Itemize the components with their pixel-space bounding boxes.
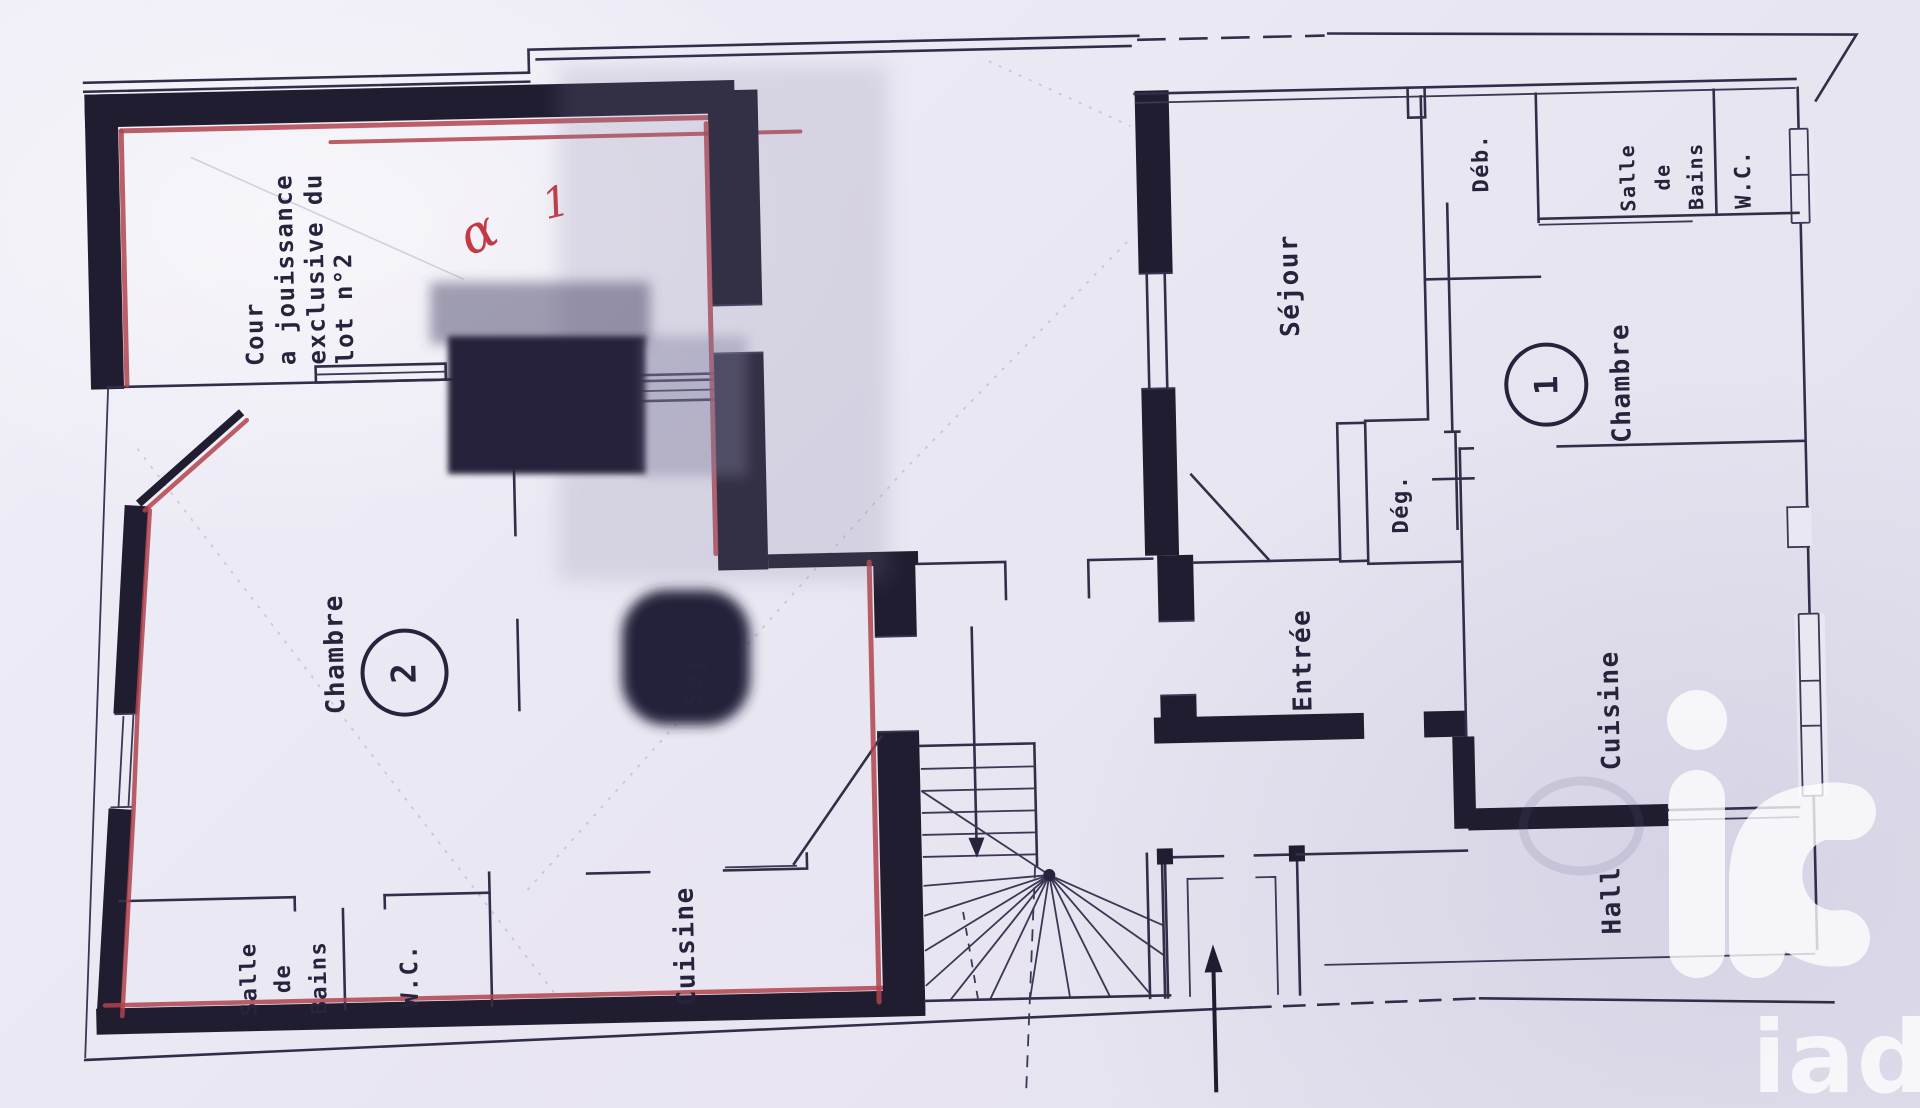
room-label-cuisine2: Cuisine — [669, 886, 702, 1007]
plan-drawing: Cour a jouissance exclusive du lot n°2 — [63, 20, 1881, 1108]
lot1-walls — [1135, 76, 1833, 969]
room-labels: Chambre 2 Salle de Bains W.C. Cuisine Sé… — [218, 127, 1774, 1016]
room-label-wc2: W.C. — [395, 943, 424, 1007]
courtyard-label-line: exclusive du — [299, 173, 331, 365]
iad-watermark: iad — [1667, 690, 1920, 1108]
room-label-cuisine1: Cuisine — [1594, 650, 1627, 771]
window-icon — [316, 364, 446, 383]
room-label-deg: Dég. — [1388, 474, 1414, 534]
iad-wordmark: iad — [1752, 999, 1920, 1108]
redaction-patches: Séj — [430, 66, 888, 725]
room-label-sdb2-line: de — [271, 963, 297, 993]
room-label-wc1: W.C. — [1731, 149, 1757, 209]
room-number-2: 2 — [384, 661, 424, 684]
room-label-chambre2: Chambre — [319, 594, 352, 715]
room-label-deb: Déb. — [1468, 133, 1494, 193]
red-scribble: α — [449, 199, 507, 268]
door-swing-line — [791, 737, 884, 864]
entrance-arrow-icon — [1204, 944, 1225, 1092]
room-number-1: 1 — [1527, 374, 1565, 396]
iad-logo-icon — [1667, 690, 1727, 750]
room-label-sdb1-line: de — [1650, 163, 1675, 191]
iad-logo-icon — [1697, 798, 1848, 950]
room-label-sdb1-line: Salle — [1615, 144, 1641, 212]
courtyard-label-line: Cour — [240, 302, 269, 366]
entrance-vestibule — [1157, 842, 1472, 1094]
door-swing-line — [1191, 473, 1268, 561]
red-annotations: α 1 — [448, 175, 575, 269]
room-label-sdb1-line: Bains — [1683, 142, 1709, 210]
courtyard-label-line: a jouissance — [269, 174, 301, 366]
courtyard-label: Cour a jouissance exclusive du lot n°2 — [237, 172, 359, 366]
stair-winder-fan — [920, 785, 1172, 1092]
redaction-dark — [448, 336, 646, 474]
room-label-sdb2-line: Bains — [306, 941, 333, 1015]
scanned-floor-plan-photo: Cour a jouissance exclusive du lot n°2 — [0, 0, 1920, 1108]
room-label-sdb2-line: Salle — [236, 942, 263, 1016]
stair-direction-line — [972, 628, 977, 846]
room-label-entree: Entrée — [1286, 608, 1318, 712]
window-icon — [1139, 273, 1176, 389]
redaction-grey — [642, 336, 747, 476]
window-icon — [1786, 129, 1816, 224]
room-label-chambre1: Chambre — [1605, 323, 1638, 444]
room-label-sejour1: Séjour — [1274, 234, 1306, 338]
floor-plan-svg: Cour a jouissance exclusive du lot n°2 — [0, 0, 1920, 1108]
window-icon — [1795, 613, 1829, 796]
door-recess — [1785, 507, 1812, 548]
courtyard-label-line: lot n°2 — [329, 252, 360, 364]
room-label-hall: Hall — [1596, 866, 1628, 935]
room-label-sejour2-fragment: Séj — [679, 658, 707, 706]
redaction-grey — [430, 282, 650, 344]
